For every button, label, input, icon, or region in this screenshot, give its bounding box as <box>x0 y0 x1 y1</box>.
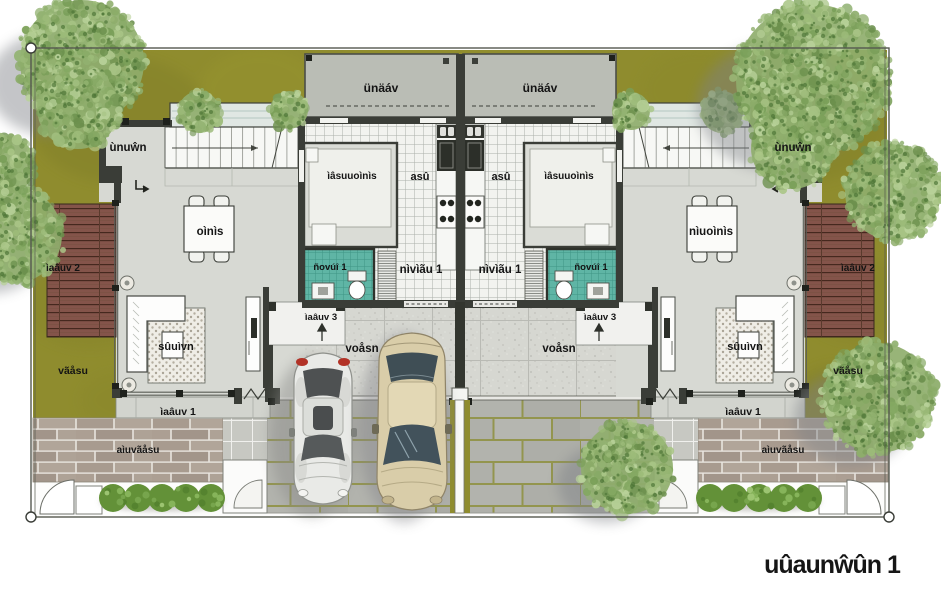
svg-text:voåsn: voåsn <box>542 343 575 355</box>
svg-text:nìvìãu 1: nìvìãu 1 <box>479 264 522 276</box>
svg-text:asû: asû <box>411 171 430 183</box>
svg-text:ünäáv: ünäáv <box>523 81 558 95</box>
svg-text:ünäáv: ünäáv <box>364 81 399 95</box>
svg-text:vãåsu: vãåsu <box>58 365 88 377</box>
svg-text:ìaâuv 1: ìaâuv 1 <box>724 406 761 418</box>
svg-text:uûaunŵûn 1: uûaunŵûn 1 <box>764 551 901 579</box>
svg-text:ìaâuv 2: ìaâuv 2 <box>840 263 875 274</box>
svg-text:sûuìvn: sûuìvn <box>727 341 763 353</box>
svg-text:aìuvãåsu: aìuvãåsu <box>117 444 160 456</box>
svg-text:ìaâuv 3: ìaâuv 3 <box>304 312 337 323</box>
svg-text:ìaâuv 3: ìaâuv 3 <box>583 312 616 323</box>
svg-text:asû: asû <box>492 171 511 183</box>
svg-text:ñovúî 1: ñovúî 1 <box>574 262 608 273</box>
svg-text:ìaâuv 1: ìaâuv 1 <box>159 406 196 418</box>
svg-text:sûuìvn: sûuìvn <box>158 341 194 353</box>
svg-text:ñovúî 1: ñovúî 1 <box>313 262 347 273</box>
svg-text:oìnìs: oìnìs <box>197 226 224 238</box>
svg-text:voåsn: voåsn <box>345 343 378 355</box>
svg-text:nìuoìnìs: nìuoìnìs <box>689 226 733 238</box>
svg-text:vãåsu: vãåsu <box>833 365 863 377</box>
svg-text:ùnuŵn: ùnuŵn <box>109 142 146 154</box>
svg-text:ìâsuuoìnìs: ìâsuuoìnìs <box>543 171 594 182</box>
svg-text:ìâsuuoìnìs: ìâsuuoìnìs <box>326 171 377 182</box>
svg-text:aìuvãåsu: aìuvãåsu <box>762 444 805 456</box>
svg-text:ùnuŵn: ùnuŵn <box>774 142 811 154</box>
svg-text:nìvìãu 1: nìvìãu 1 <box>400 264 443 276</box>
svg-text:ìaâuv 2: ìaâuv 2 <box>45 263 80 274</box>
